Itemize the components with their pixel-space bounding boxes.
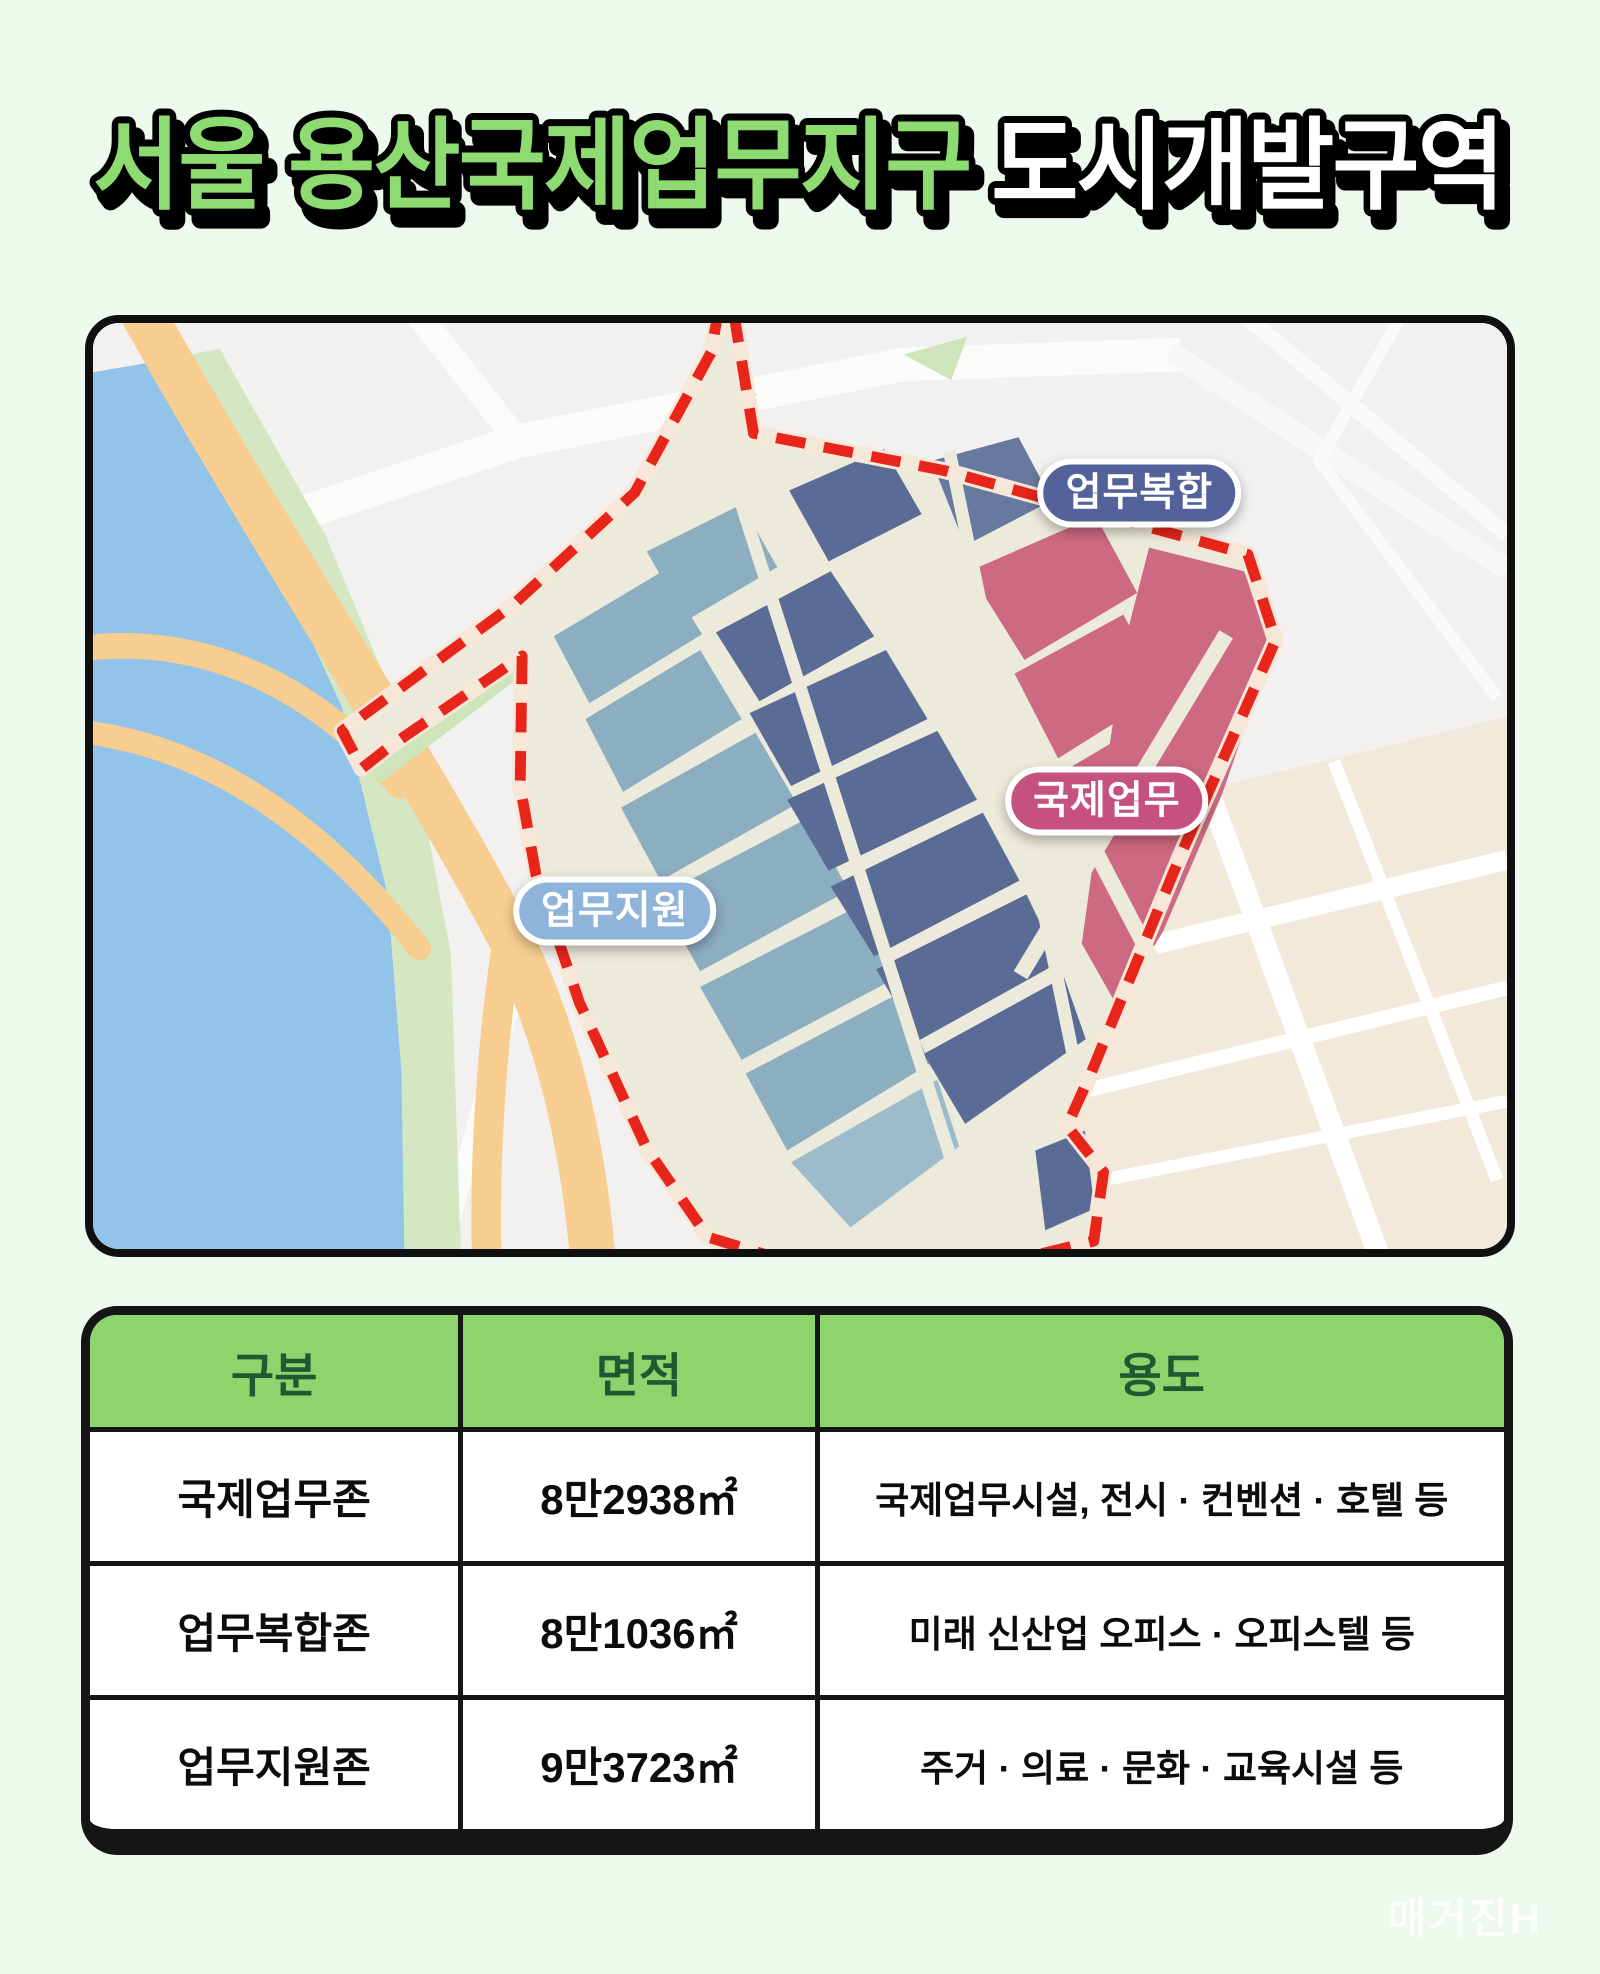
zone-use-cell: 국제업무시설, 전시 · 컨벤션 · 호텔 등 (820, 1427, 1504, 1561)
table-row: 업무복합존 8만1036㎡ 미래 신산업 오피스 · 오피스텔 등 (90, 1561, 1504, 1695)
zone-info-table: 구분 면적 용도 국제업무존 8만2938㎡ 국제업무시설, 전시 · 컨벤션 … (81, 1306, 1513, 1855)
zone-label-eopmu-bokhap: 업무복합 (1038, 459, 1242, 528)
infographic-page: 서울 용산국제업무지구도시개발구역 서울 용산국제업무지구도시개발구역 (0, 0, 1600, 1974)
zone-name-cell: 업무복합존 (90, 1561, 463, 1695)
title-zone-name: 도시개발구역 (991, 110, 1503, 222)
zone-name-cell: 업무지원존 (90, 1695, 463, 1829)
table-header-category: 구분 (90, 1315, 463, 1427)
zone-label-gukje-eopmu: 국제업무 (1005, 766, 1209, 835)
table-header-row: 구분 면적 용도 (90, 1315, 1504, 1427)
zone-area-cell: 8만1036㎡ (463, 1561, 819, 1695)
district-map: 업무복합 국제업무 업무지원 (85, 315, 1515, 1257)
zone-name-cell: 국제업무존 (90, 1427, 463, 1561)
map-canvas (93, 323, 1507, 1249)
zone-use-cell: 미래 신산업 오피스 · 오피스텔 등 (820, 1561, 1504, 1695)
page-title: 서울 용산국제업무지구도시개발구역 서울 용산국제업무지구도시개발구역 (0, 40, 1600, 270)
table-row: 국제업무존 8만2938㎡ 국제업무시설, 전시 · 컨벤션 · 호텔 등 (90, 1427, 1504, 1561)
table-header-area: 면적 (463, 1315, 819, 1427)
zone-use-cell: 주거 · 의료 · 문화 · 교육시설 등 (820, 1695, 1504, 1829)
page-title-text: 서울 용산국제업무지구도시개발구역 (93, 110, 1503, 222)
zone-area-cell: 9만3723㎡ (463, 1695, 819, 1829)
title-district-name: 서울 용산국제업무지구 (93, 110, 970, 222)
zone-area-cell: 8만2938㎡ (463, 1427, 819, 1561)
table-row: 업무지원존 9만3723㎡ 주거 · 의료 · 문화 · 교육시설 등 (90, 1695, 1504, 1829)
table-header-use: 용도 (820, 1315, 1504, 1427)
zone-label-eopmu-jiwon: 업무지원 (513, 877, 717, 946)
watermark: 매거진H (1388, 1885, 1542, 1946)
